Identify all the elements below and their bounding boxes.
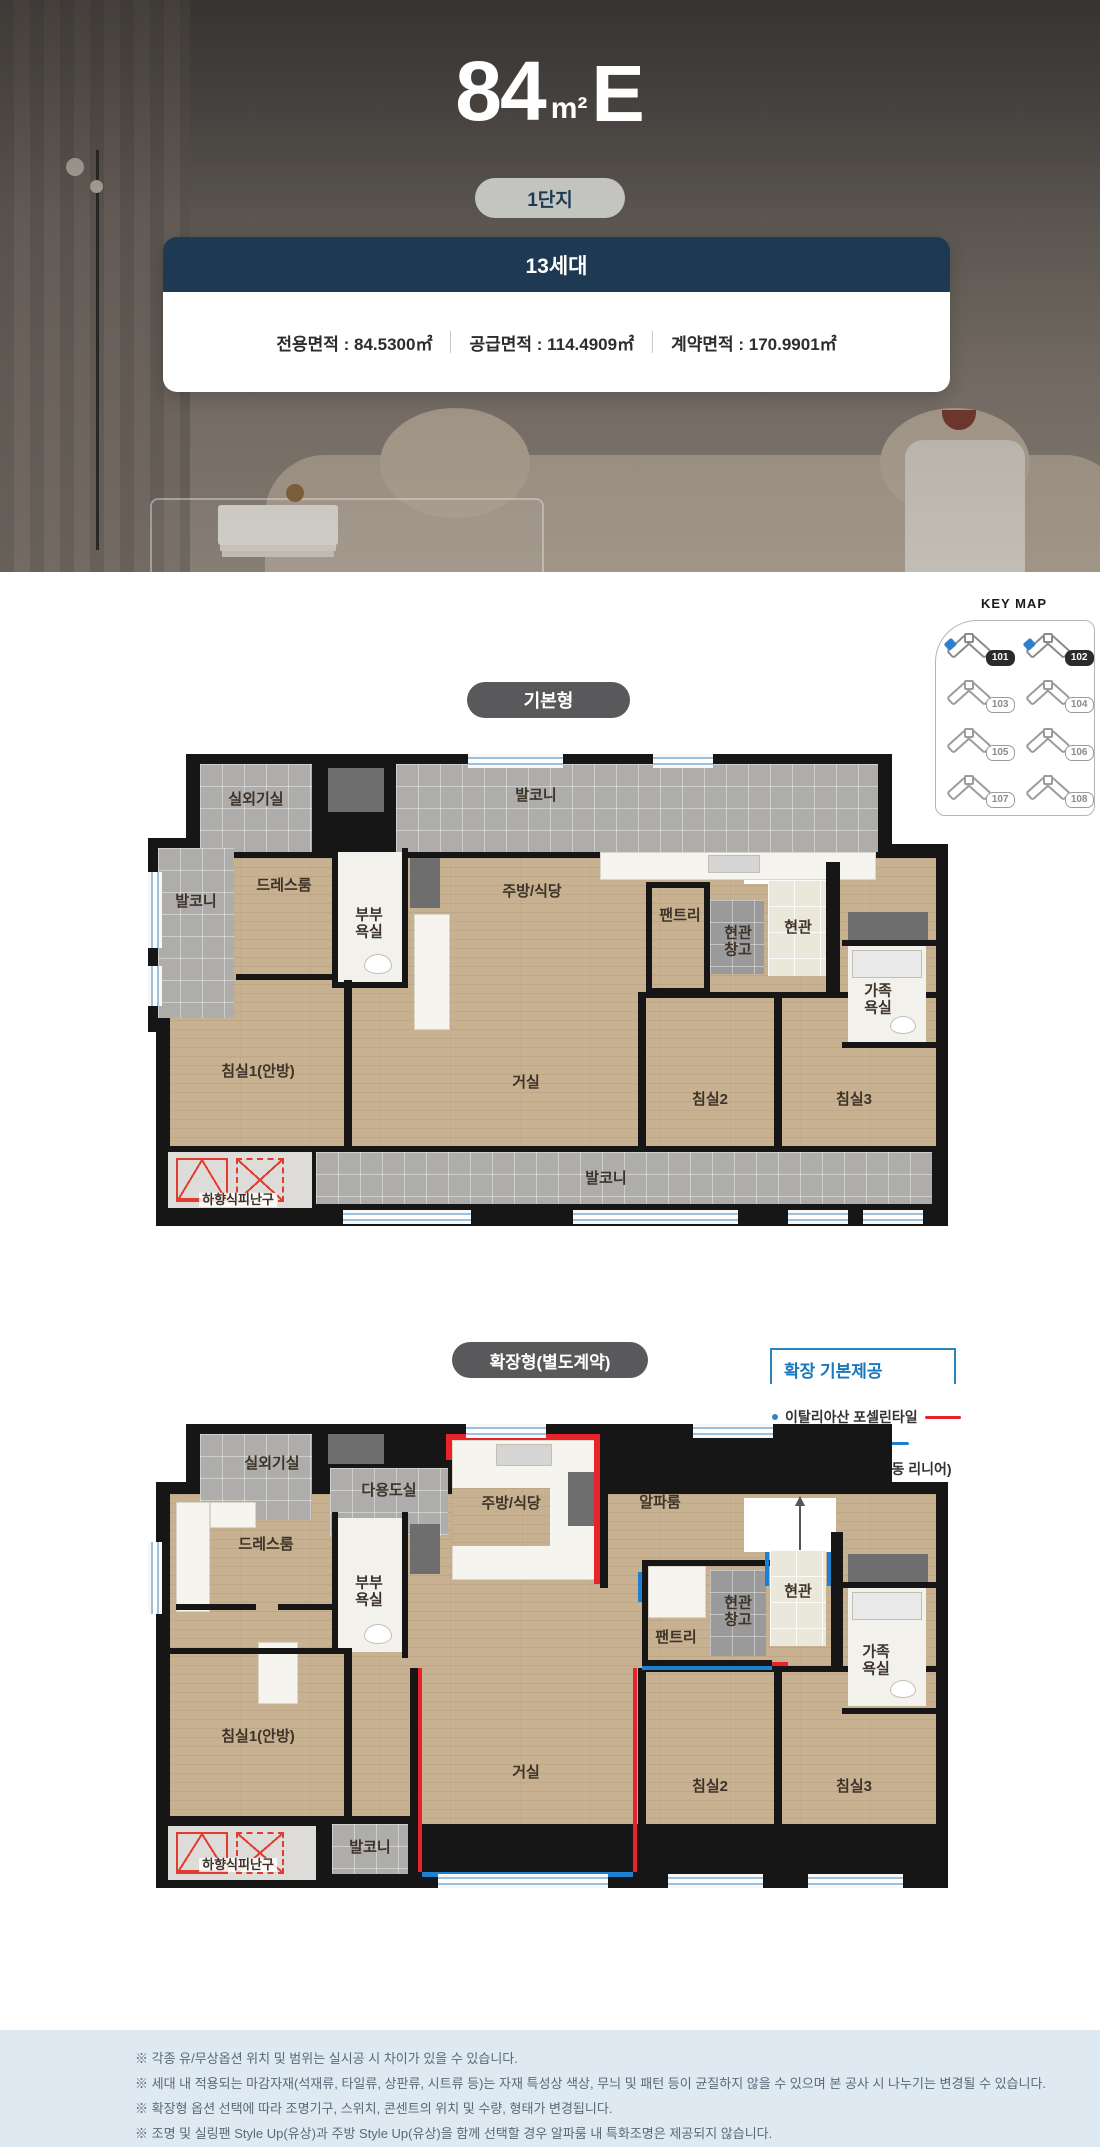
room-label-entry-storage: 현관 창고 — [724, 926, 752, 959]
room-label-pantry: 팬트리 — [655, 1630, 696, 1647]
keymap-building-108: 108 — [1020, 768, 1090, 810]
room-balcony-top — [396, 764, 878, 852]
window — [653, 754, 713, 768]
keymap-building-106: 106 — [1020, 721, 1090, 763]
unit-plan-page: 84 m² E 1단지 13세대 전용면적 : 84.5300㎡ 공급면적 : … — [0, 0, 1100, 2147]
room-label-escape: 하향식피난구 — [199, 1193, 277, 1207]
room-label-balcony-bottom: 발코니 — [585, 1171, 626, 1188]
closet — [210, 1502, 256, 1528]
bullet-icon — [772, 1414, 778, 1420]
complex-badge: 1단지 — [475, 178, 625, 218]
divider — [652, 331, 653, 353]
refrigerator — [568, 1472, 594, 1526]
shaft — [848, 912, 928, 940]
area-exclusive: 전용면적 : 84.5300㎡ — [276, 330, 432, 355]
bathtub — [852, 950, 922, 978]
room-label-dress: 드레스룸 — [256, 878, 311, 895]
entry-arrow-icon — [794, 1496, 806, 1552]
sheet-panel-line — [765, 1552, 769, 1586]
closet — [176, 1502, 210, 1612]
wall — [646, 882, 652, 994]
wall — [774, 1672, 782, 1824]
wall — [646, 882, 710, 888]
room-label-outdoor: 실외기실 — [228, 792, 283, 809]
wall — [831, 1532, 843, 1666]
plan-basic-badge: 기본형 — [467, 682, 630, 718]
window — [668, 1874, 763, 1888]
red-line-swatch — [925, 1416, 961, 1419]
provide-box-title: 확장 기본제공 — [784, 1357, 954, 1382]
unit-measure: m² — [545, 92, 592, 132]
footer-note: ※ 조명 및 실링팬 Style Up(유상)과 주방 Style Up(유상)… — [135, 2121, 1060, 2146]
area-supply: 공급면적 : 114.4909㎡ — [469, 330, 634, 355]
building-badge: 105 — [986, 745, 1015, 761]
area-contract: 계약면적 : 170.9901㎡ — [671, 330, 837, 355]
plan-extended-badge: 확장형(별도계약) — [452, 1342, 648, 1378]
window — [693, 1424, 773, 1438]
wall — [638, 996, 646, 1146]
toilet — [890, 1016, 916, 1034]
entry-exterior — [744, 1498, 836, 1552]
room-label-family-bath: 가족 욕실 — [864, 984, 892, 1017]
keymap: 101 102 103 104 105 106 107 108 — [935, 620, 1095, 816]
divider — [450, 331, 451, 353]
wall — [842, 1708, 948, 1714]
wall — [164, 1648, 348, 1654]
window — [468, 754, 563, 768]
wall — [402, 848, 408, 988]
building-badge: 102 — [1065, 650, 1094, 666]
room-label-dress: 드레스룸 — [238, 1537, 293, 1554]
sink — [708, 855, 760, 873]
provide-box: 확장 기본제공 — [770, 1348, 956, 1384]
keymap-building-101: 101 — [941, 626, 1011, 668]
room-label-entry-storage: 현관 창고 — [724, 1596, 752, 1629]
room-label-entry: 현관 — [784, 920, 812, 937]
room-label-kitchen: 주방/식당 — [481, 1496, 540, 1513]
wall — [842, 1042, 948, 1048]
shaft — [848, 1554, 928, 1582]
room-label-balcony-left: 발코니 — [175, 894, 216, 911]
room-label-utility: 다용도실 — [361, 1483, 416, 1500]
floor-plan-extended: 실외기실 다용도실 드레스룸 부부 욕실 주방/식당 알파룸 팬트리 현관 창고… — [148, 1424, 950, 1890]
wall — [646, 988, 710, 994]
porcelain-tile-line — [633, 1668, 637, 1872]
room-label-living: 거실 — [512, 1765, 540, 1782]
window — [438, 1874, 608, 1888]
building-badge: 106 — [1065, 745, 1094, 761]
wall — [236, 974, 338, 980]
sheet-panel-line — [642, 1666, 772, 1670]
building-badge: 101 — [986, 650, 1015, 666]
room-label-bed3: 침실3 — [836, 1779, 872, 1796]
toilet — [364, 954, 392, 974]
wall — [600, 1438, 608, 1588]
room-label-family-bath: 가족 욕실 — [862, 1645, 890, 1678]
room-label-kitchen: 주방/식당 — [502, 884, 561, 901]
building-badge: 103 — [986, 697, 1015, 713]
room-balcony-left — [158, 848, 234, 1018]
footer-note: ※ 각종 유/무상옵션 위치 및 범위는 실시공 시 차이가 있을 수 있습니다… — [135, 2046, 1060, 2071]
sheet-panel-line — [638, 1572, 642, 1602]
wall — [638, 1668, 646, 1868]
wall — [402, 1512, 408, 1658]
room-label-pantry: 팬트리 — [659, 908, 700, 925]
bathtub — [852, 1592, 922, 1620]
window — [788, 1210, 848, 1224]
sink — [496, 1444, 552, 1466]
room-label-bed1: 침실1(안방) — [221, 1064, 295, 1081]
shaft — [410, 858, 440, 908]
porcelain-tile-line — [418, 1668, 422, 1872]
toilet — [364, 1624, 392, 1644]
room-label-couple-bath: 부부 욕실 — [355, 908, 383, 941]
window — [148, 872, 162, 948]
porcelain-tile-line — [446, 1434, 452, 1460]
wall — [332, 848, 338, 984]
wall — [176, 1604, 256, 1610]
porcelain-tile-line — [594, 1434, 600, 1584]
room-label-couple-bath: 부부 욕실 — [355, 1576, 383, 1609]
room-label-balcony: 발코니 — [349, 1840, 390, 1857]
keymap-building-105: 105 — [941, 721, 1011, 763]
keymap-building-107: 107 — [941, 768, 1011, 810]
unit-type-title: 84 m² E — [0, 52, 1100, 132]
wall — [344, 980, 352, 1146]
shaft — [410, 1524, 440, 1574]
wall — [164, 1816, 414, 1824]
building-badge: 108 — [1065, 792, 1094, 808]
household-card: 13세대 전용면적 : 84.5300㎡ 공급면적 : 114.4909㎡ 계약… — [163, 237, 950, 392]
room-label-alpha: 알파룸 — [639, 1495, 680, 1512]
room-label-escape: 하향식피난구 — [199, 1858, 277, 1872]
wall — [774, 996, 782, 1146]
building-badge: 107 — [986, 792, 1015, 808]
room-label-bed1: 침실1(안방) — [221, 1729, 295, 1746]
footer-note: ※ 확장형 옵션 선택에 따라 조명기구, 스위치, 콘센트의 위치 및 수량,… — [135, 2096, 1060, 2121]
room-label-bed2: 침실2 — [692, 1779, 728, 1796]
window — [466, 1424, 546, 1438]
wall — [410, 1668, 418, 1868]
room-label-balcony-top: 발코니 — [515, 788, 556, 805]
window — [863, 1210, 923, 1224]
room-label-bed2: 침실2 — [692, 1092, 728, 1109]
toilet — [890, 1680, 916, 1698]
wall — [344, 1648, 352, 1818]
building-badge: 104 — [1065, 697, 1094, 713]
window — [343, 1210, 471, 1224]
footer-note: ※ 세대 내 적용되는 마감자재(석재류, 타일류, 상판류, 시트류 등)는 … — [135, 2071, 1060, 2096]
room-label-entry: 현관 — [784, 1584, 812, 1601]
window-box — [328, 768, 384, 812]
household-count: 13세대 — [163, 237, 950, 292]
keymap-building-102: 102 — [1020, 626, 1090, 668]
footer-notes: ※ 각종 유/무상옵션 위치 및 범위는 실시공 시 차이가 있을 수 있습니다… — [0, 2030, 1100, 2147]
window-box — [328, 1434, 384, 1464]
window — [808, 1874, 903, 1888]
unit-number: 84 — [455, 52, 544, 132]
window — [573, 1210, 738, 1224]
wall — [826, 862, 840, 998]
floor-plan-basic: 실외기실 발코니 발코니 드레스룸 부부 욕실 주방/식당 팬트리 현관 창고 … — [148, 752, 950, 1228]
cabinet — [414, 914, 450, 1030]
unit-letter: E — [591, 56, 644, 132]
room-label-living: 거실 — [512, 1075, 540, 1092]
room-label-outdoor: 실외기실 — [244, 1456, 299, 1473]
window — [148, 966, 162, 1006]
room-label-bed3: 침실3 — [836, 1092, 872, 1109]
window — [148, 1542, 162, 1614]
area-info: 전용면적 : 84.5300㎡ 공급면적 : 114.4909㎡ 계약면적 : … — [163, 292, 950, 392]
keymap-building-104: 104 — [1020, 673, 1090, 715]
hero-photo: 84 m² E 1단지 13세대 전용면적 : 84.5300㎡ 공급면적 : … — [0, 0, 1100, 572]
wall — [278, 1604, 338, 1610]
keymap-title: KEY MAP — [935, 596, 1093, 611]
keymap-building-103: 103 — [941, 673, 1011, 715]
pantry-closet — [648, 1566, 706, 1618]
